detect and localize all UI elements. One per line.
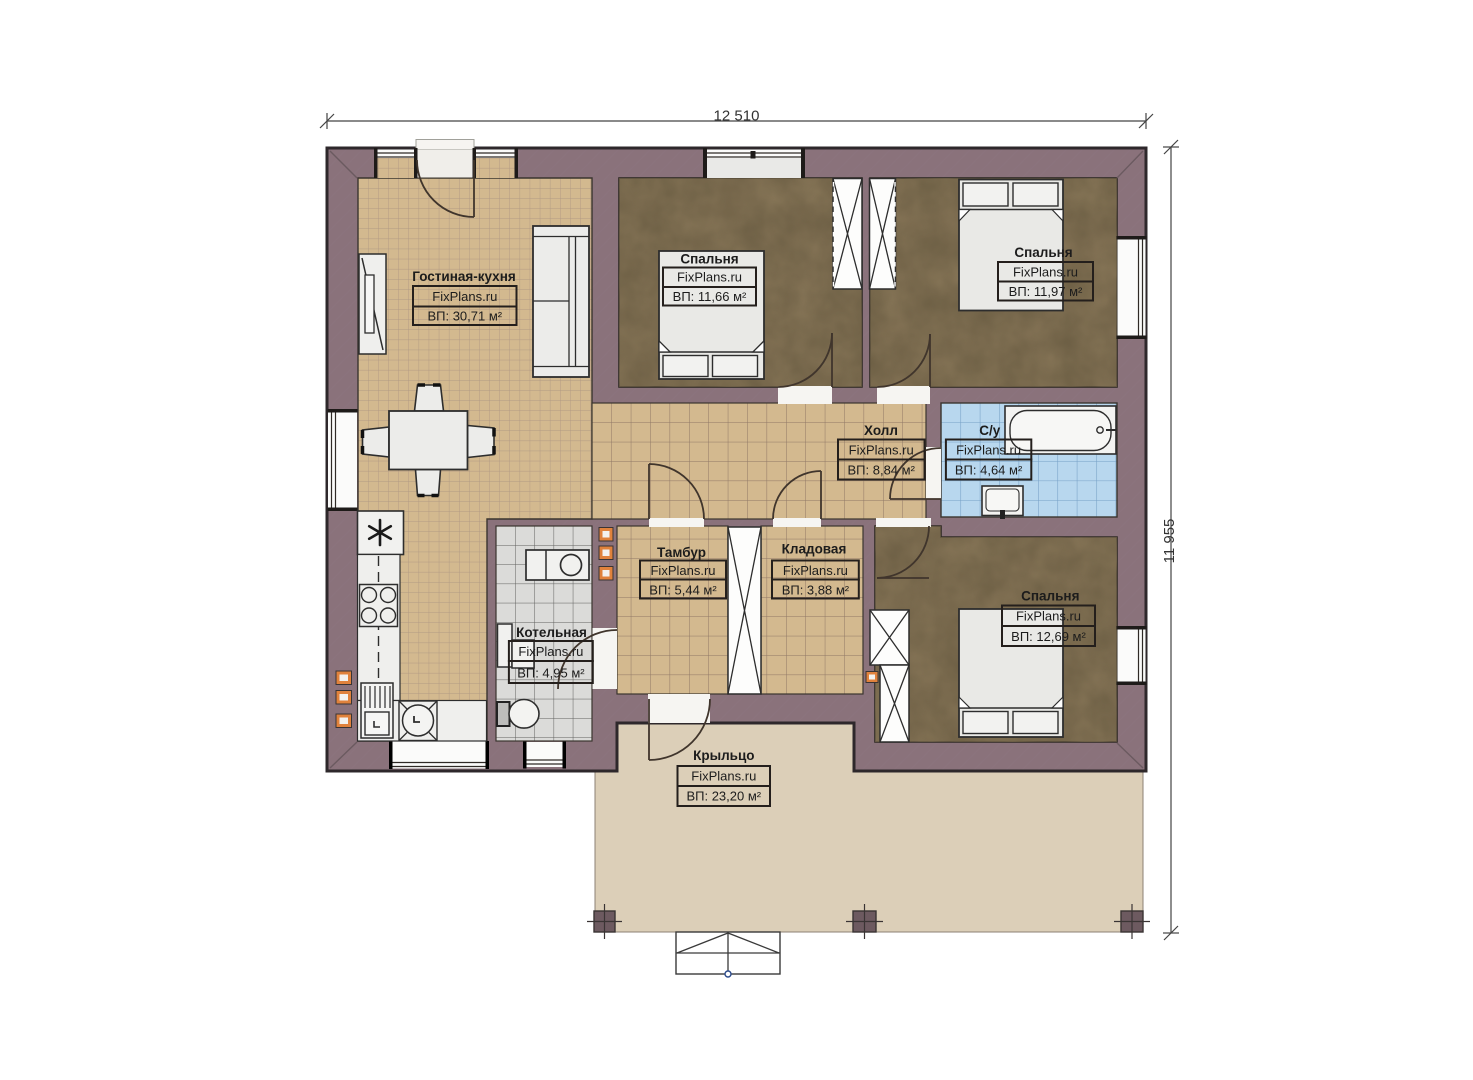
svg-text:Гостиная-кухня: Гостиная-кухня bbox=[412, 269, 515, 284]
svg-text:Спальня: Спальня bbox=[1021, 589, 1079, 604]
svg-text:ВП: 8,84 м²: ВП: 8,84 м² bbox=[847, 463, 915, 478]
svg-text:11 955: 11 955 bbox=[1161, 519, 1178, 564]
svg-text:FixPlans.ru: FixPlans.ru bbox=[1013, 265, 1078, 280]
svg-text:FixPlans.ru: FixPlans.ru bbox=[956, 443, 1021, 458]
svg-text:ВП: 4,95 м²: ВП: 4,95 м² bbox=[517, 666, 585, 681]
svg-text:ВП: 30,71 м²: ВП: 30,71 м² bbox=[427, 309, 502, 324]
svg-text:FixPlans.ru: FixPlans.ru bbox=[1016, 609, 1081, 624]
svg-text:Спальня: Спальня bbox=[680, 252, 738, 267]
svg-text:ВП: 5,44 м²: ВП: 5,44 м² bbox=[649, 583, 717, 598]
svg-text:ВП: 3,88 м²: ВП: 3,88 м² bbox=[782, 583, 850, 598]
svg-text:ВП: 23,20 м²: ВП: 23,20 м² bbox=[686, 789, 761, 804]
svg-text:FixPlans.ru: FixPlans.ru bbox=[677, 270, 742, 285]
svg-text:FixPlans.ru: FixPlans.ru bbox=[432, 289, 497, 304]
svg-text:Холл: Холл bbox=[864, 423, 898, 438]
svg-text:Крыльцо: Крыльцо bbox=[693, 748, 754, 763]
svg-text:FixPlans.ru: FixPlans.ru bbox=[518, 644, 583, 659]
svg-text:Кладовая: Кладовая bbox=[782, 542, 847, 557]
svg-text:Котельная: Котельная bbox=[516, 625, 587, 640]
svg-text:ВП: 4,64 м²: ВП: 4,64 м² bbox=[955, 463, 1023, 478]
svg-text:Тамбур: Тамбур bbox=[657, 545, 706, 560]
svg-text:FixPlans.ru: FixPlans.ru bbox=[650, 563, 715, 578]
svg-text:FixPlans.ru: FixPlans.ru bbox=[783, 563, 848, 578]
svg-text:ВП: 11,97 м²: ВП: 11,97 м² bbox=[1009, 284, 1083, 299]
svg-text:С/у: С/у bbox=[979, 423, 1001, 438]
svg-text:FixPlans.ru: FixPlans.ru bbox=[691, 769, 756, 784]
svg-text:ВП: 12,69 м²: ВП: 12,69 м² bbox=[1011, 629, 1086, 644]
svg-text:FixPlans.ru: FixPlans.ru bbox=[849, 443, 914, 458]
svg-text:ВП: 11,66 м²: ВП: 11,66 м² bbox=[673, 289, 747, 304]
svg-text:12 510: 12 510 bbox=[714, 108, 760, 125]
svg-text:Спальня: Спальня bbox=[1014, 245, 1072, 260]
